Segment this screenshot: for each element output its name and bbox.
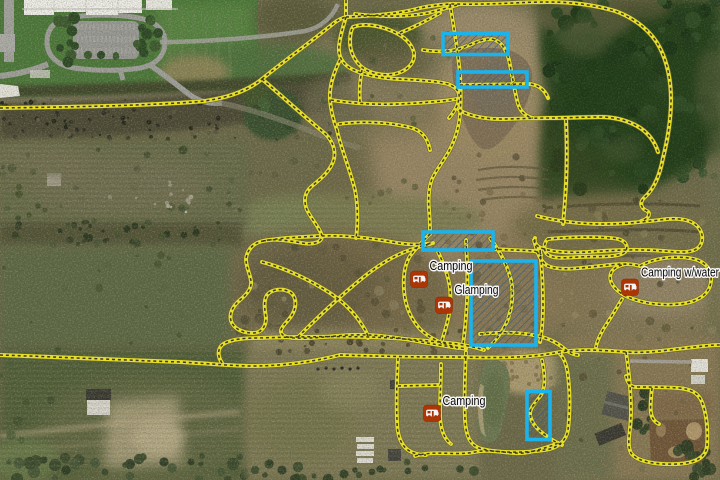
svg-text:Camping: Camping xyxy=(430,258,473,273)
svg-text:Camping w/water: Camping w/water xyxy=(641,265,720,280)
svg-text:Camping: Camping xyxy=(443,393,486,408)
svg-text:Glamping: Glamping xyxy=(455,282,499,297)
